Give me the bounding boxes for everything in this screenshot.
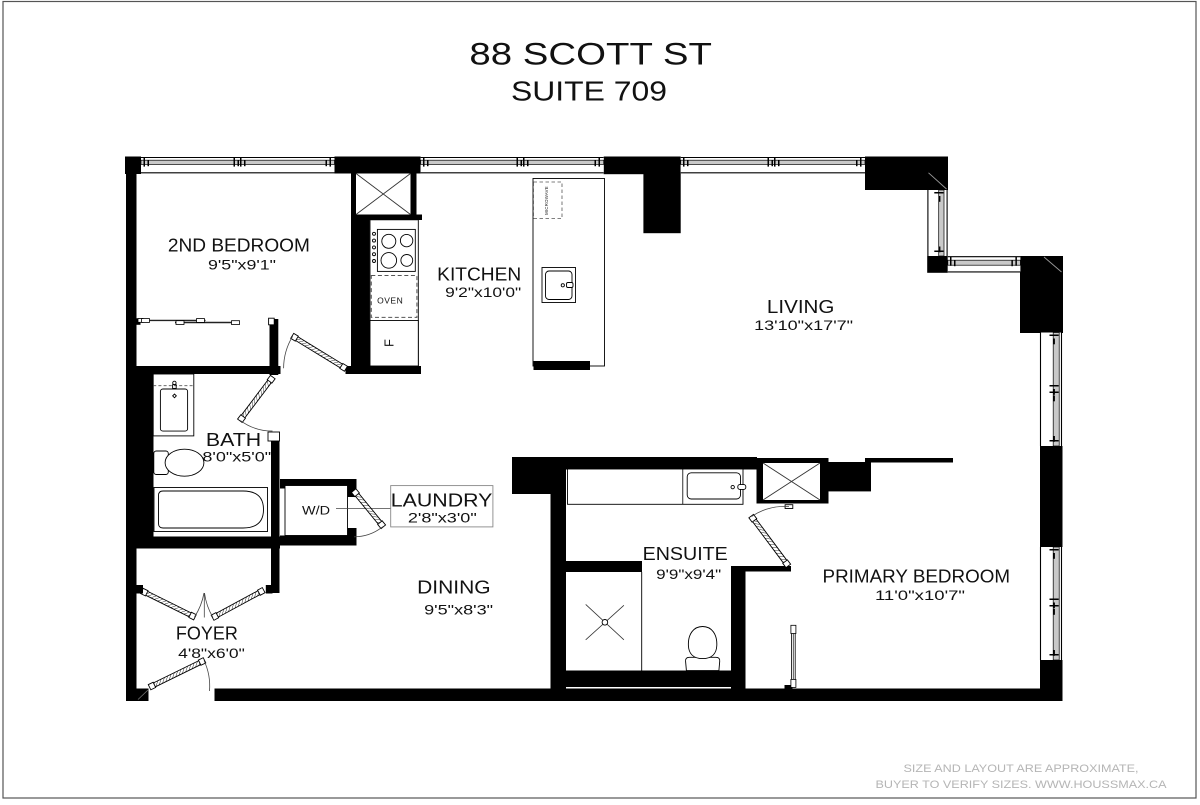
svg-text:8'0"x5'0": 8'0"x5'0"	[202, 449, 271, 465]
svg-text:KITCHEN: KITCHEN	[437, 264, 521, 285]
svg-text:OVEN: OVEN	[377, 295, 403, 305]
svg-text:MICROWAVE: MICROWAVE	[544, 186, 549, 215]
svg-text:2ND BEDROOM: 2ND BEDROOM	[168, 235, 310, 256]
svg-text:BATH: BATH	[206, 429, 261, 450]
svg-text:9'9"x9'4": 9'9"x9'4"	[656, 567, 721, 583]
svg-text:9'5"x8'3": 9'5"x8'3"	[424, 602, 493, 618]
svg-text:9'5"x9'1": 9'5"x9'1"	[208, 257, 276, 273]
svg-text:9'2"x10'0": 9'2"x10'0"	[445, 285, 521, 301]
svg-text:2'8"x3'0": 2'8"x3'0"	[408, 510, 477, 526]
svg-text:ENSUITE: ENSUITE	[643, 543, 728, 564]
svg-text:LAUNDRY: LAUNDRY	[391, 489, 493, 510]
svg-text:LIVING: LIVING	[767, 296, 835, 317]
svg-text:SUITE 709: SUITE 709	[511, 75, 667, 106]
svg-text:PRIMARY BEDROOM: PRIMARY BEDROOM	[823, 566, 1011, 587]
svg-text:SIZE AND LAYOUT ARE APPROXIMAT: SIZE AND LAYOUT ARE APPROXIMATE,	[904, 763, 1139, 775]
svg-text:BUYER TO VERIFY SIZES. WWW.HOU: BUYER TO VERIFY SIZES. WWW.HOUSSMAX.CA	[876, 779, 1168, 791]
svg-text:88 SCOTT ST: 88 SCOTT ST	[469, 36, 712, 72]
svg-text:DINING: DINING	[417, 577, 491, 598]
svg-text:11'0"x10'7": 11'0"x10'7"	[875, 588, 965, 604]
svg-text:W/D: W/D	[302, 506, 330, 518]
svg-text:13'10"x17'7": 13'10"x17'7"	[754, 318, 853, 334]
svg-text:F: F	[382, 339, 397, 347]
svg-text:FOYER: FOYER	[176, 623, 238, 644]
svg-text:4'8"x6'0": 4'8"x6'0"	[178, 646, 245, 662]
